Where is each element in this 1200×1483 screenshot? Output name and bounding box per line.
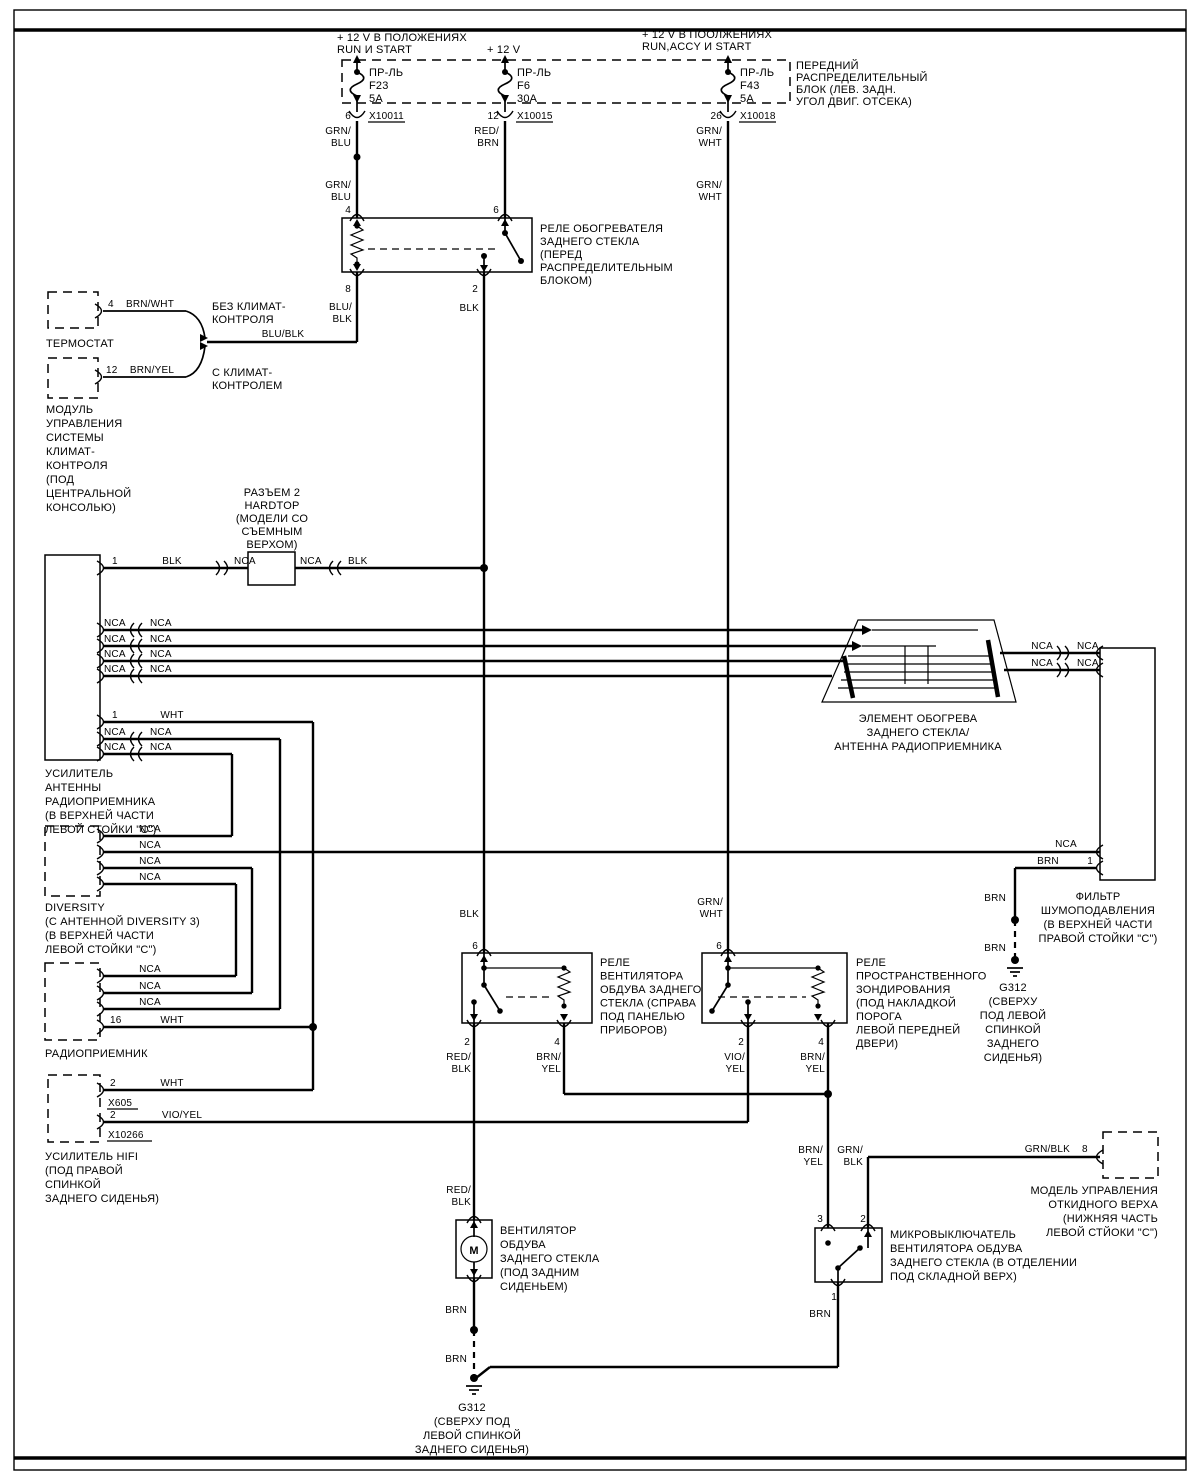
front-distribution-block: + 12 V В ПОЛОЖЕНИЯХRUN И START + 12 V + … [337,29,928,122]
wire-label-nca: NCA [150,634,172,645]
pin-number: 8 [1082,1144,1088,1155]
wire-label-brn-wht: BRN/WHT [126,299,174,310]
diversity-label: DIVERSITY(С АНТЕННОЙ DIVERSITY 3)(В ВЕРХ… [45,902,200,956]
fan-relay: 6 РЕЛЕВЕНТИЛЯТОРАОБДУВА ЗАДНЕГОСТЕКЛА (С… [446,941,701,1075]
fuse-word: ПР-ЛЬ [517,67,551,79]
climate-branch: BLU/BLK BLU/BLK 4 BRN/WHT ТЕРМОСТАТ 12 B… [46,272,357,514]
pin-number: 2 [472,284,478,295]
pin-number: 1 [1087,856,1093,867]
pin-number: 2 [464,1037,470,1048]
wire-label-red-brn: RED/BRN [474,126,499,149]
feed-wires: GRN/BLU GRN/BLU 4 RED/BRN 6 GRN/WHT GRN/… [325,121,728,953]
pin-number: 12 [106,365,118,376]
wire-label-brn: BRN [445,1305,467,1316]
pin-number: 1 [112,710,118,721]
routing-verticals [232,722,317,1090]
rear-window-fan-motor: M ВЕНТИЛЯТОРОБДУВАЗАДНЕГО СТЕКЛА(ПОД ЗАД… [415,1217,600,1457]
fuse-amp: 30A [517,93,538,105]
wire-label-grn-wht: GRN/WHT [696,126,722,149]
pin-number: 4 [818,1037,824,1048]
heater-relay-label: РЕЛЕ ОБОГРЕВАТЕЛЯЗАДНЕГО СТЕКЛА(ПЕРЕДРАС… [540,223,673,287]
wiring-diagram: + 12 V В ПОЛОЖЕНИЯХRUN И START + 12 V + … [0,0,1200,1483]
rear-window-element: ЭЛЕМЕНТ ОБОГРЕВАЗАДНЕГО СТЕКЛА/АНТЕННА Р… [822,620,1100,753]
feed2-label: + 12 V [487,44,521,56]
wire-label-nca: NCA [300,556,322,567]
pin-number: 4 [554,1037,560,1048]
wire-label-brn-yel: BRN/YEL [536,1052,561,1075]
wire-label-blk: BLK [459,909,479,920]
fuse-word: ПР-ЛЬ [369,67,403,79]
wire-label-red-blk: RED/BLK [446,1052,471,1075]
thermostat-label: ТЕРМОСТАТ [46,338,114,350]
wire-label-nca: NCA [1077,658,1099,669]
rear-window-heater-relay: РЕЛЕ ОБОГРЕВАТЕЛЯЗАДНЕГО СТЕКЛА(ПЕРЕДРАС… [342,215,673,296]
wire-label-blk: BLK [348,556,368,567]
pin-number: 6 [345,111,351,122]
wire-label-brn: BRN [809,1309,831,1320]
motor-symbol: M [469,1245,478,1257]
wiring-diagram-page: + 12 V В ПОЛОЖЕНИЯХRUN И START + 12 V + … [0,0,1200,1483]
wire-label-nca: NCA [139,872,161,883]
pin-number: 12 [487,111,499,122]
wire-label-blk: BLK [162,556,182,567]
feed1-label: + 12 V В ПОЛОЖЕНИЯХRUN И START [337,32,467,56]
wire-label-brn: BRN [1037,856,1059,867]
wire-label-nca: NCA [104,664,126,675]
wire-label-wht: WHT [160,710,183,721]
wire-label-nca: NCA [104,649,126,660]
wire-label-nca: NCA [139,856,161,867]
no-ac-label: БЕЗ КЛИМАТ-КОНТРОЛЯ [212,301,286,326]
wire-label-nca: NCA [150,618,172,629]
connector-name: X605 [108,1098,132,1109]
connector-name: X10011 [369,111,404,122]
wire-label-nca: NCA [139,824,161,835]
pin-number: 2 [860,1214,866,1225]
wire-label-grn-wht: GRN/WHT [697,897,723,920]
wire-label-nca: NCA [139,964,161,975]
fuse-word: ПР-ЛЬ [740,67,774,79]
with-ac-label: С КЛИМАТ-КОНТРОЛЕМ [212,367,283,392]
wire-label-vio-yel: VIO/YEL [162,1110,203,1121]
ground-symbol-g312-bottom [466,1374,482,1394]
folding-top-module-label: МОДЕЛЬ УПРАВЛЕНИЯОТКИДНОГО ВЕРХА(НИЖНЯЯ … [1030,1185,1158,1239]
wire-label-nca: NCA [1055,839,1077,850]
radio-receiver: NCA NCA NCA 16 WHT РАДИОПРИЕМНИК [45,963,313,1060]
feed3-label: + 12 V В ПООЛЖЕНИЯХRUN,ACCY И START [642,29,773,53]
pin-number: 2 [738,1037,744,1048]
noise-filter: NCA BRN 1 BRN BRN G312(СВЕРХУПОД ЛЕВОЙСП… [980,646,1158,1064]
climate-module-label: МОДУЛЬУПРАВЛЕНИЯСИСТЕМЫКЛИМАТ-КОНТРОЛЯ(П… [46,404,131,514]
wire-label-brn: BRN [445,1354,467,1365]
wire-label-grn-blu: GRN/BLU [325,180,351,203]
wire-label-nca: NCA [150,727,172,738]
g312-bottom-label: G312(СВЕРХУ ПОДЛЕВОЙ СПИНКОЙЗАДНЕГО СИДЕ… [415,1402,529,1456]
fuse-amp: 5A [740,93,754,105]
wire-label-brn-yel: BRN/YEL [800,1052,825,1075]
wire-label-nca: NCA [1031,658,1053,669]
pin-number: 4 [108,299,114,310]
fuse-name: F6 [517,80,530,92]
pin-number: 16 [110,1015,122,1026]
spatial-sounding-relay: 6 GRN/WHT РЕЛЕПРОСТРАНСТВЕННОГОЗОНДИРОВА… [697,897,987,1075]
amp-nca-rows: NCA NCA NCA NCA NCA NCA NCA NCA [97,618,862,683]
fuse-f6: ПР-ЛЬ F6 30A 12 X10015 [487,55,553,122]
wire-label-wht: WHT [160,1078,183,1089]
wire-label-nca: NCA [104,742,126,753]
wire-label-nca: NCA [104,618,126,629]
wire-label-red-blk: RED/BLK [446,1185,471,1208]
wire-label-grn-blk: GRN/BLK [1025,1144,1070,1155]
wire-label-blk: BLK [459,303,479,314]
pin-number: 6 [493,205,499,216]
diversity-module: NCA NCA NCA NCA DIVERSITY(С АНТЕННОЙ DIV… [45,824,1100,956]
wire-label-grn-blk: GRN/BLK [837,1145,863,1168]
connector-name: X10015 [517,111,553,122]
distribution-block-label: ПЕРЕДНИЙРАСПРЕДЕЛИТЕЛЬНЫЙБЛОК (ЛЕВ. ЗАДН… [796,59,928,108]
wire-label-nca: NCA [234,556,256,567]
lower-wires: RED/BLK BRN/YEL 3 [446,1023,832,1228]
fan-relay-label: РЕЛЕВЕНТИЛЯТОРАОБДУВА ЗАДНЕГОСТЕКЛА (СПР… [600,957,702,1037]
wire-label-brn: BRN [984,893,1006,904]
fuse-f43: ПР-ЛЬ F43 5A 26 X10018 [710,55,776,122]
hardtop-connector-label: РАЗЪЕМ 2HARDTOP(МОДЕЛИ СОСЪЕМНЫМВЕРХОМ) [236,487,309,551]
wire-label-vio-yel: VIO/YEL [724,1052,745,1075]
pin-number: 1 [831,1292,837,1303]
pin-number: 6 [472,941,478,952]
wire-label-wht: WHT [160,1015,183,1026]
wire-label-nca: NCA [1077,641,1099,652]
connector-name: X10018 [740,111,776,122]
fuse-f23: ПР-ЛЬ F23 5A 6 X10011 [345,55,405,122]
sounding-relay-label: РЕЛЕПРОСТРАНСТВЕННОГОЗОНДИРОВАНИЯ(ПОД НА… [856,957,987,1050]
pin-number: 3 [817,1214,823,1225]
pin-number: 2 [110,1110,116,1121]
g312-right-label: G312(СВЕРХУПОД ЛЕВОЙСПИНКОЙЗАДНЕГОСИДЕНЬ… [980,982,1047,1064]
hardtop-connector-2: РАЗЪЕМ 2HARDTOP(МОДЕЛИ СОСЪЕМНЫМВЕРХОМ) … [97,487,484,585]
wire-label-nca: NCA [104,634,126,645]
noise-filter-label: ФИЛЬТРШУМОПОДАВЛЕНИЯ(В ВЕРХНЕЙ ЧАСТИПРАВ… [1039,891,1158,945]
wire-label-grn-blu: GRN/BLU [325,126,351,149]
folding-top-module: GRN/BLK 8 МОДЕЛЬ УПРАВЛЕНИЯОТКИДНОГО ВЕР… [868,1132,1158,1239]
connector-name: X10266 [108,1130,144,1141]
wire-label-brn: BRN [984,943,1006,954]
wire-label-blu-blk: BLU/BLK [329,302,352,325]
wire-label-nca: NCA [139,981,161,992]
wire-label-blu-blk: BLU/BLK [262,329,305,340]
fuse-name: F23 [369,80,389,92]
wire-label-grn-wht: GRN/WHT [696,180,722,203]
pin-number: 4 [345,205,351,216]
wire-label-brn-yel: BRN/YEL [130,365,174,376]
wire-label-nca: NCA [150,664,172,675]
fuse-name: F43 [740,80,760,92]
wire-label-nca: NCA [1031,641,1053,652]
ground-symbol-g312-right [1007,956,1023,976]
hifi-label: УСИЛИТЕЛЬ HIFI(ПОД ПРАВОЙСПИНКОЙЗАДНЕГО … [45,1151,159,1205]
pin-number: 2 [110,1078,116,1089]
pin-number: 8 [345,284,351,295]
pin-number: 6 [716,941,722,952]
wire-label-nca: NCA [150,742,172,753]
wire-label-brn-yel: BRN/YEL [798,1145,823,1168]
fuse-amp: 5A [369,93,383,105]
fan-motor-label: ВЕНТИЛЯТОРОБДУВАЗАДНЕГО СТЕКЛА(ПОД ЗАДНИ… [500,1225,600,1293]
wire-label-nca: NCA [104,727,126,738]
wire-label-nca: NCA [139,840,161,851]
antenna-amplifier: NCA NCA NCA NCA NCA NCA NCA NCA 1 WHT NC [45,555,862,836]
rear-window-element-label: ЭЛЕМЕНТ ОБОГРЕВАЗАДНЕГО СТЕКЛА/АНТЕННА Р… [834,713,1002,753]
pin-number: 1 [112,556,118,567]
radio-label: РАДИОПРИЕМНИК [45,1048,148,1060]
wire-label-nca: NCA [150,649,172,660]
wire-label-nca: NCA [139,997,161,1008]
pin-number: 26 [710,111,722,122]
